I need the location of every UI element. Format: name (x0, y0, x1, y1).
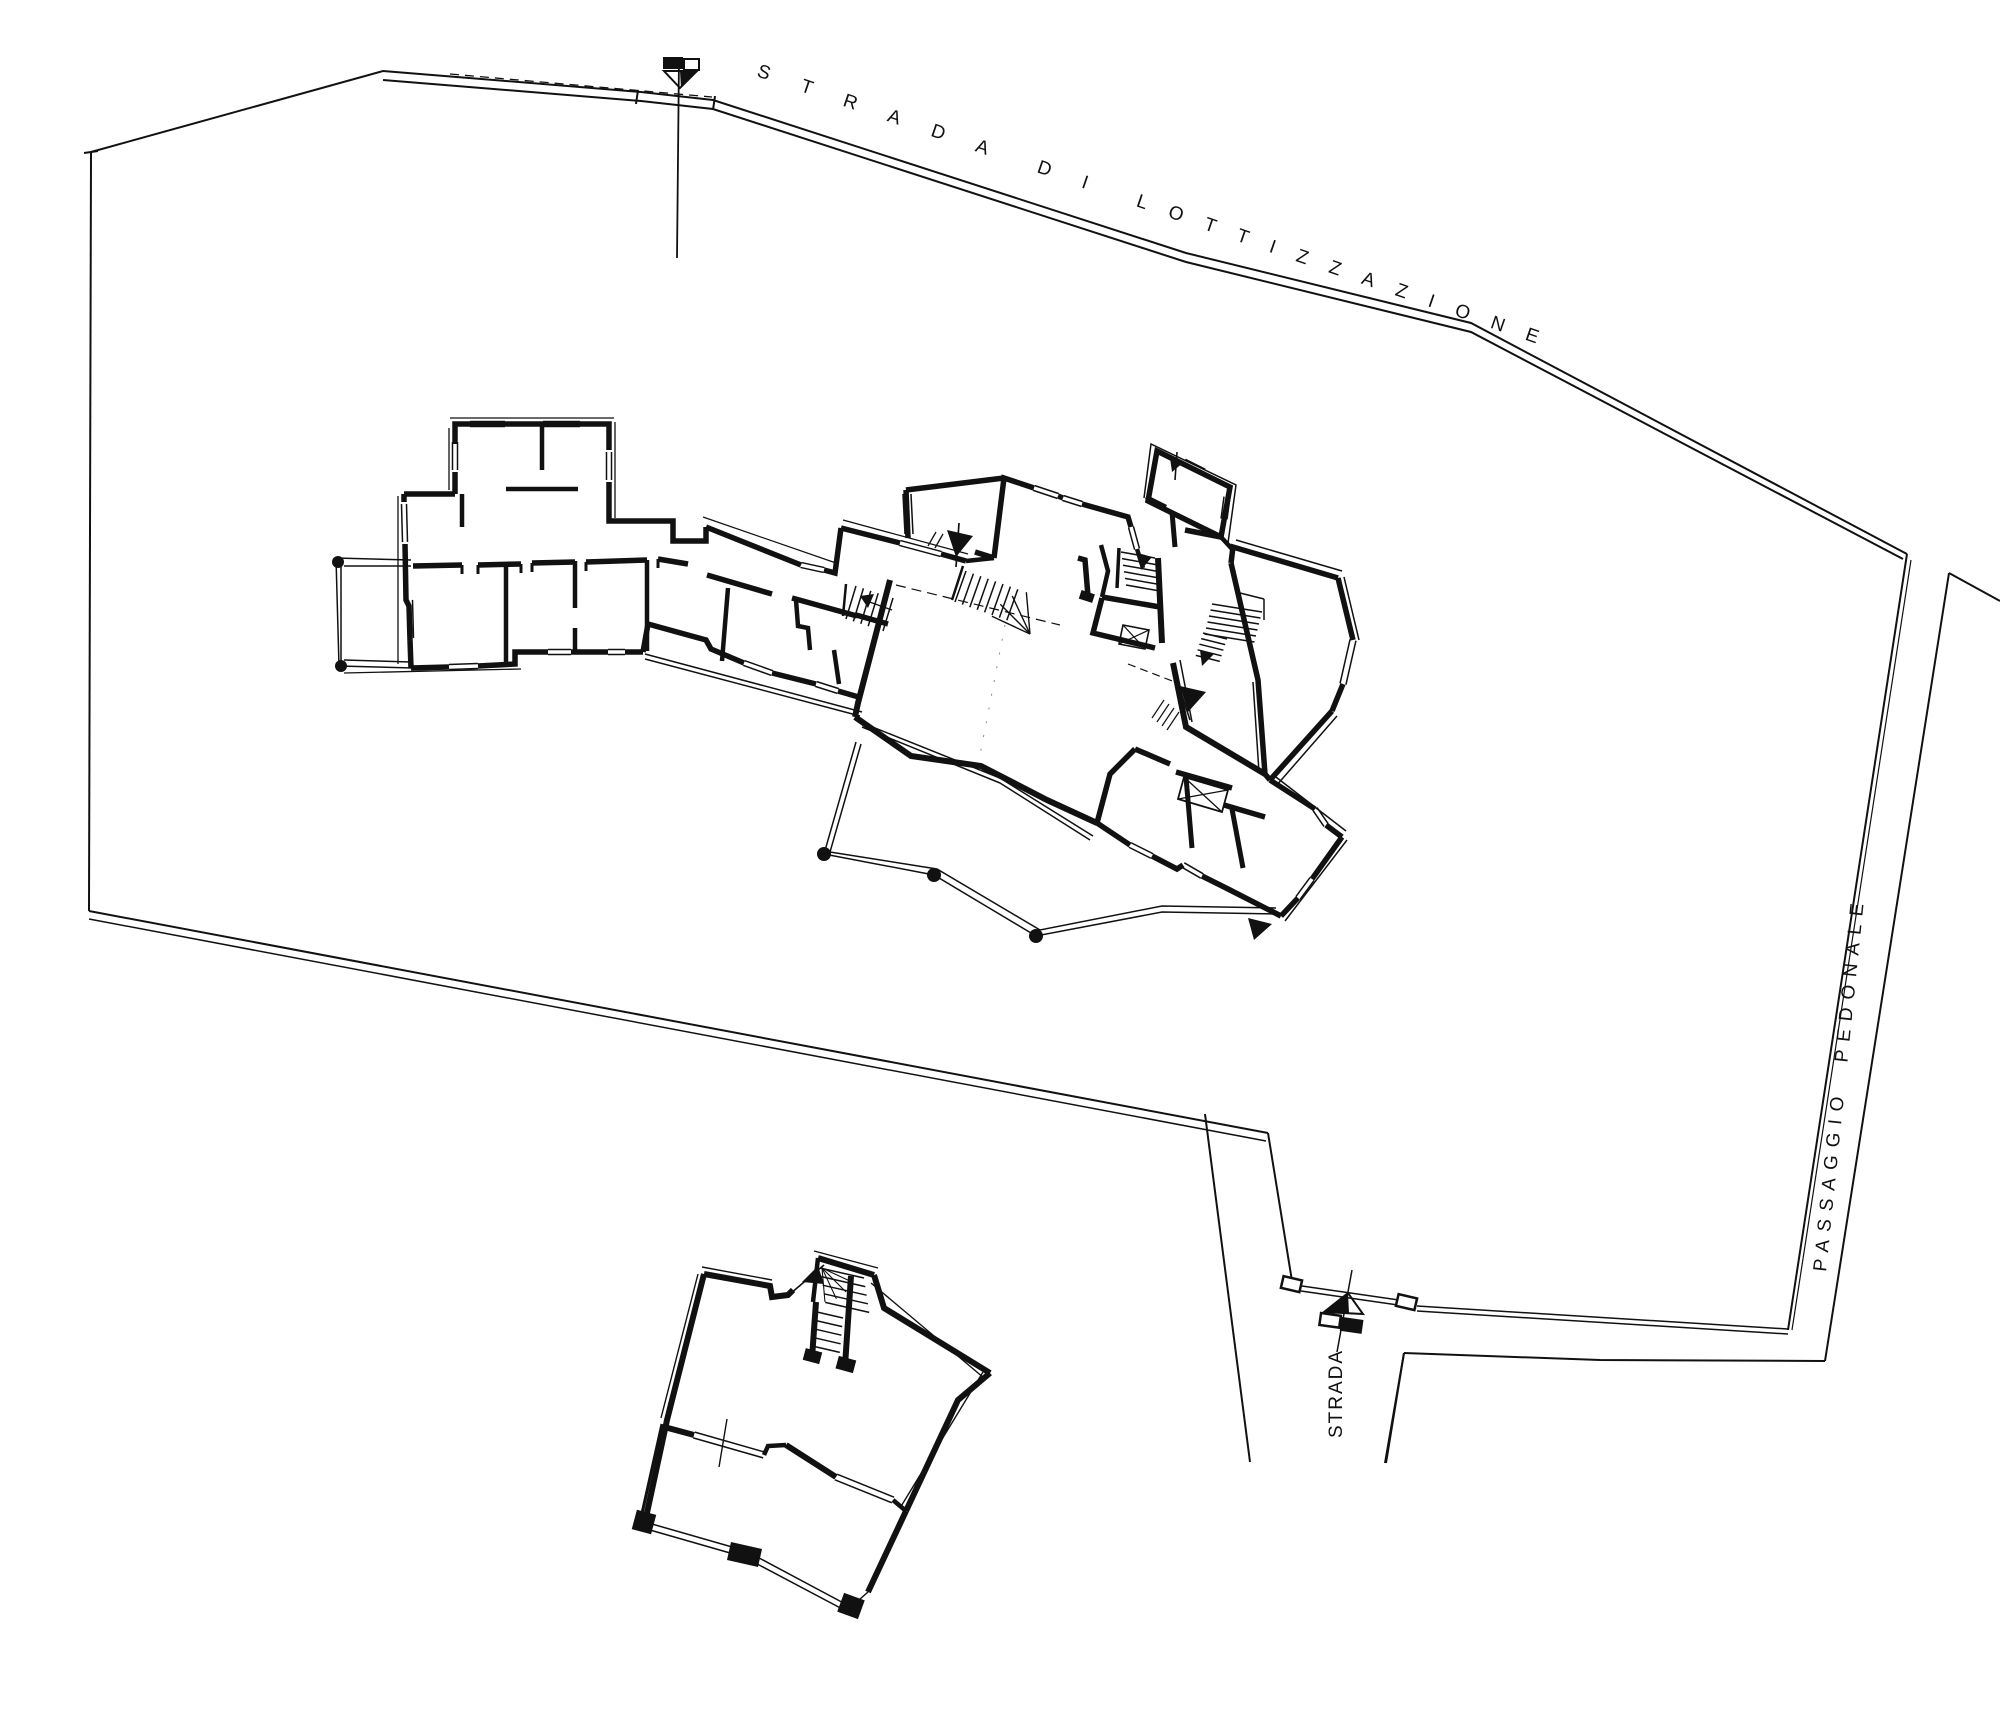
svg-text:STRADA: STRADA (1326, 1349, 1347, 1438)
